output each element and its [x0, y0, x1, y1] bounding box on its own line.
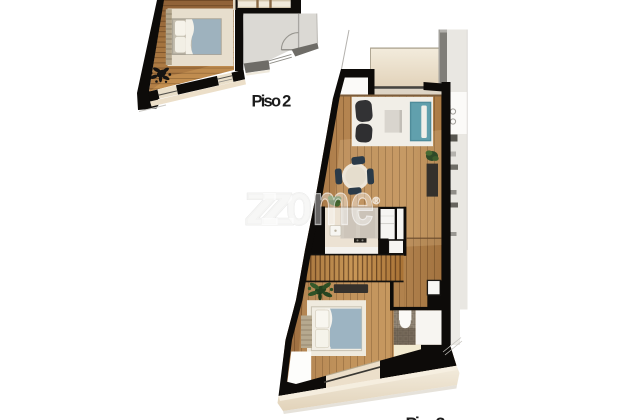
svg-text:Piso 2: Piso 2 — [252, 93, 292, 111]
svg-text:Piso 3: Piso 3 — [406, 414, 446, 420]
svg-text:ome: ome — [286, 173, 374, 238]
svg-text:®: ® — [373, 196, 381, 207]
